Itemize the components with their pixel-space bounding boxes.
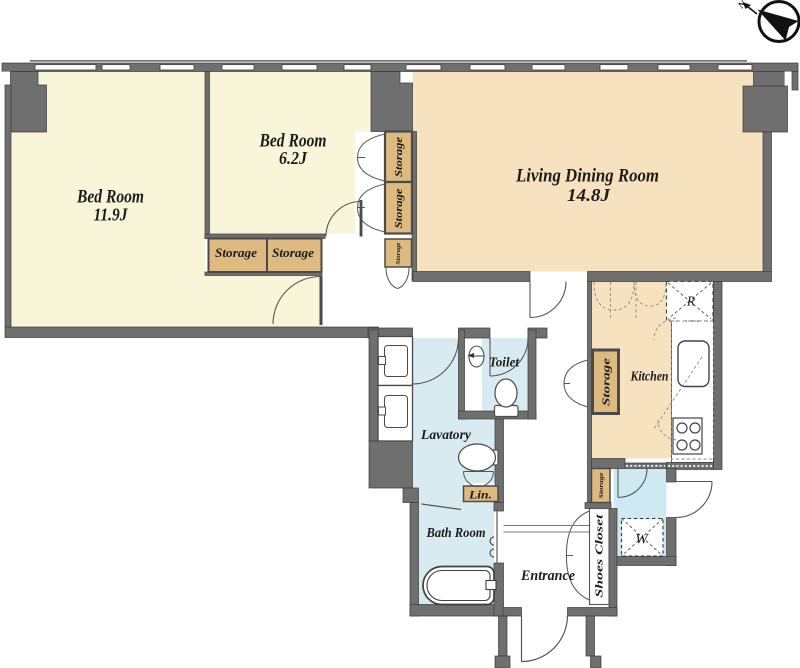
svg-text:14.8J: 14.8J [567,185,611,205]
svg-text:11.9J: 11.9J [94,205,129,225]
svg-text:Storage: Storage [215,245,257,260]
svg-text:W: W [635,532,649,548]
svg-text:Storage: Storage [598,472,605,498]
svg-text:Kitchen: Kitchen [630,370,669,385]
svg-text:Storage: Storage [394,137,405,177]
svg-text:Entrance: Entrance [520,568,576,584]
svg-text:6.2J: 6.2J [279,148,308,168]
svg-text:R: R [686,294,696,309]
svg-text:Storage: Storage [602,358,613,406]
svg-text:Storage: Storage [394,188,405,228]
svg-text:Lavatory: Lavatory [420,428,472,443]
svg-text:Lin.: Lin. [468,488,492,502]
svg-text:Shoes Closet: Shoes Closet [594,513,606,597]
svg-text:Storage: Storage [395,242,402,264]
svg-text:Living Dining Room: Living Dining Room [515,166,659,187]
svg-text:Bath Room: Bath Room [426,526,486,541]
svg-text:Storage: Storage [272,245,314,260]
svg-text:Toilet: Toilet [489,356,520,371]
